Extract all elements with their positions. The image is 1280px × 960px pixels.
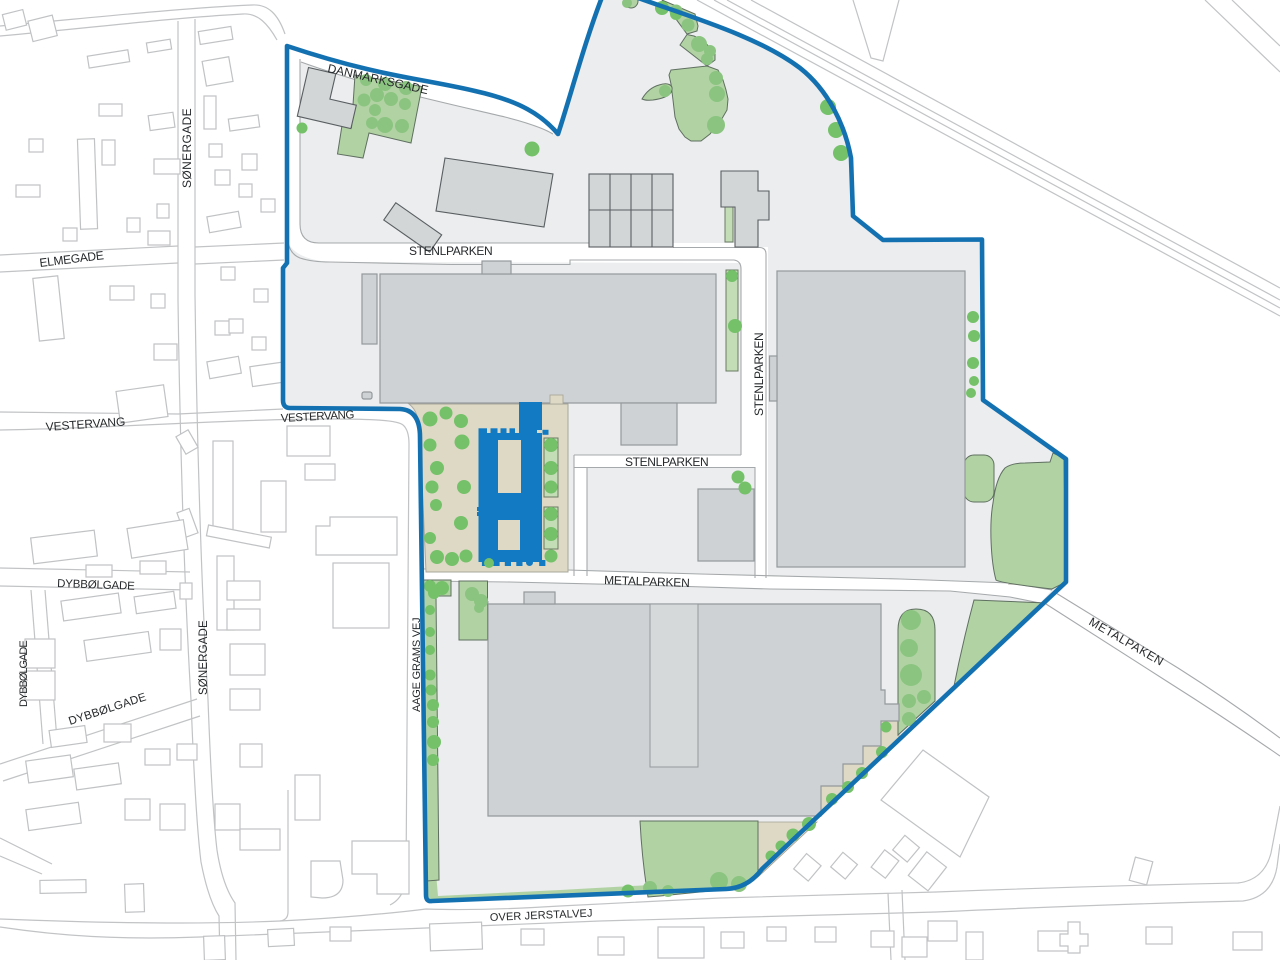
svg-text:METALPARKEN: METALPARKEN: [604, 573, 690, 590]
svg-text:SØNERGADE: SØNERGADE: [180, 108, 194, 188]
svg-text:AAGE GRAMS VEJ: AAGE GRAMS VEJ: [411, 617, 423, 712]
svg-text:STENLPARKEN: STENLPARKEN: [752, 332, 766, 416]
svg-text:DYBBØLGADE: DYBBØLGADE: [18, 640, 30, 707]
svg-text:STENLPARKEN: STENLPARKEN: [625, 455, 709, 469]
svg-text:SØNERGADE: SØNERGADE: [198, 620, 210, 695]
svg-text:STENLPARKEN: STENLPARKEN: [409, 244, 493, 258]
